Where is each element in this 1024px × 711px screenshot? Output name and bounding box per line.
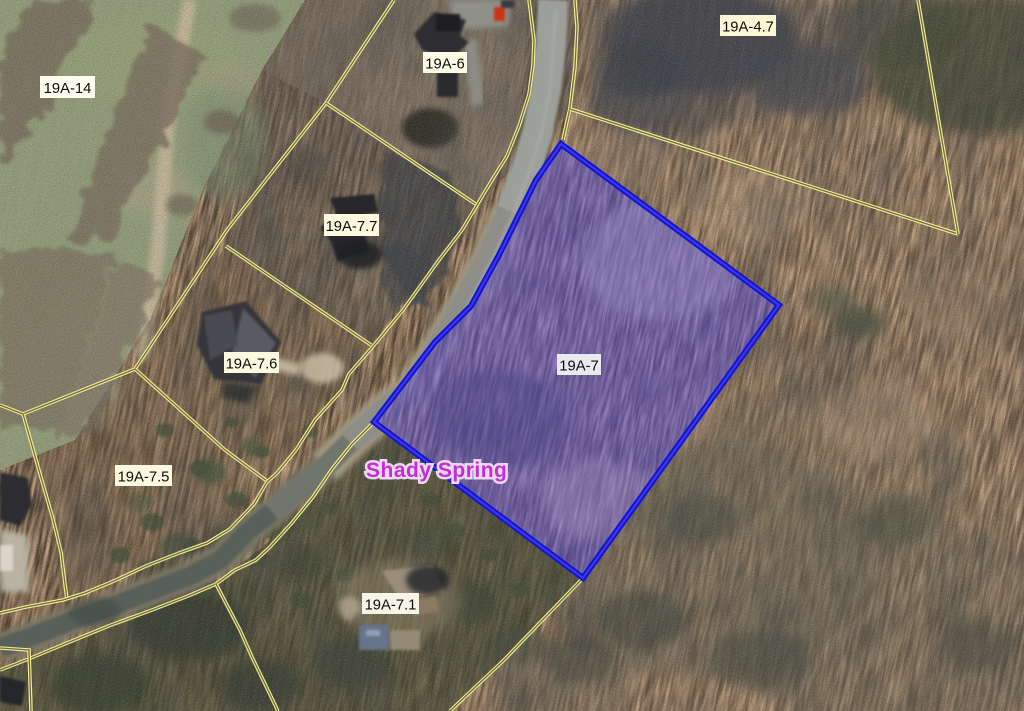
svg-text:19A-6: 19A-6 <box>425 57 465 73</box>
svg-text:19A-7: 19A-7 <box>559 359 599 375</box>
svg-text:Shady Spring: Shady Spring <box>366 459 507 482</box>
svg-text:19A-7.6: 19A-7.6 <box>226 357 278 373</box>
svg-text:19A-7.5: 19A-7.5 <box>118 470 170 486</box>
svg-text:19A-4.7: 19A-4.7 <box>722 20 774 36</box>
svg-text:19A-7.1: 19A-7.1 <box>365 598 417 614</box>
svg-text:19A-14: 19A-14 <box>44 81 92 97</box>
svg-text:19A-7.7: 19A-7.7 <box>326 219 378 235</box>
